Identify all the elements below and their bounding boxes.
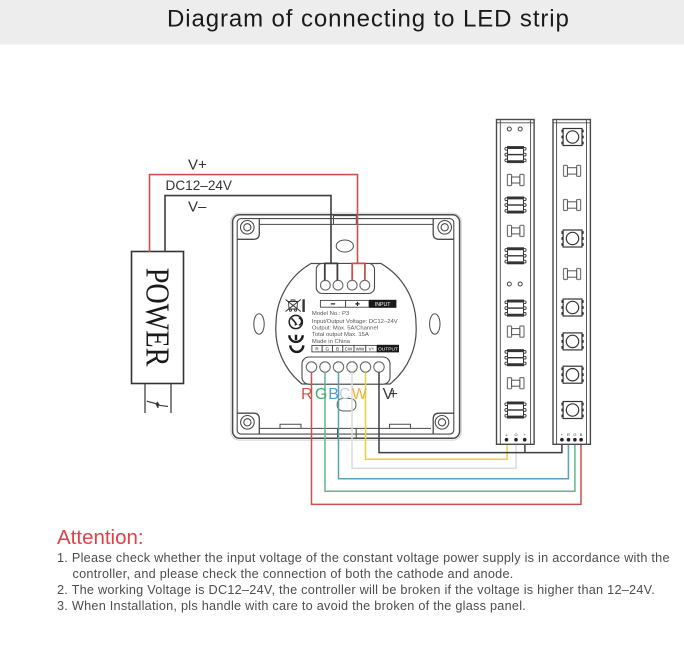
svg-text:O: O bbox=[514, 432, 517, 437]
svg-text:G: G bbox=[326, 347, 330, 352]
svg-text:CW: CW bbox=[345, 347, 353, 352]
svg-text:B: B bbox=[580, 432, 583, 437]
svg-text:WW: WW bbox=[356, 347, 365, 352]
svg-text:Output: Max. 5A/Channel: Output: Max. 5A/Channel bbox=[312, 326, 378, 332]
svg-text:⊥: ⊥ bbox=[505, 432, 509, 437]
svg-text:OUTPUT: OUTPUT bbox=[378, 347, 398, 353]
svg-text:V–: V– bbox=[188, 199, 207, 216]
svg-text:B: B bbox=[336, 347, 339, 352]
svg-text:Input/Output Voltage: DC12–24V: Input/Output Voltage: DC12–24V bbox=[312, 319, 398, 325]
svg-text:Made in China: Made in China bbox=[312, 339, 351, 345]
svg-text:V+: V+ bbox=[369, 347, 375, 352]
svg-text:V+: V+ bbox=[188, 157, 207, 174]
svg-text:controller, and please check t: controller, and please check the connect… bbox=[73, 567, 514, 581]
svg-text:1. Please check whether the in: 1. Please check whether the input voltag… bbox=[57, 551, 670, 565]
svg-text:2. The working Voltage is DC12: 2. The working Voltage is DC12–24V, the … bbox=[57, 583, 655, 597]
svg-text:DC12–24V: DC12–24V bbox=[166, 178, 233, 193]
svg-text:Total output Max. 15A: Total output Max. 15A bbox=[312, 332, 369, 338]
svg-text:G: G bbox=[573, 432, 576, 437]
svg-text:G: G bbox=[315, 386, 327, 403]
svg-text:Model No.: P3: Model No.: P3 bbox=[312, 311, 350, 317]
svg-text:POWER: POWER bbox=[139, 268, 177, 367]
svg-text:C: C bbox=[339, 386, 351, 403]
svg-text:R: R bbox=[301, 386, 313, 403]
svg-text:V+: V+ bbox=[383, 386, 398, 403]
svg-text:3. When Installation, pls hand: 3. When Installation, pls handle with ca… bbox=[57, 599, 526, 613]
svg-text:B: B bbox=[328, 386, 339, 403]
svg-text:W: W bbox=[352, 386, 368, 403]
svg-text:Diagram of connecting to LED s: Diagram of connecting to LED strip bbox=[167, 6, 570, 33]
svg-text:R: R bbox=[567, 432, 570, 437]
svg-text:INPUT: INPUT bbox=[375, 302, 391, 308]
svg-text:Attention:: Attention: bbox=[57, 526, 144, 549]
